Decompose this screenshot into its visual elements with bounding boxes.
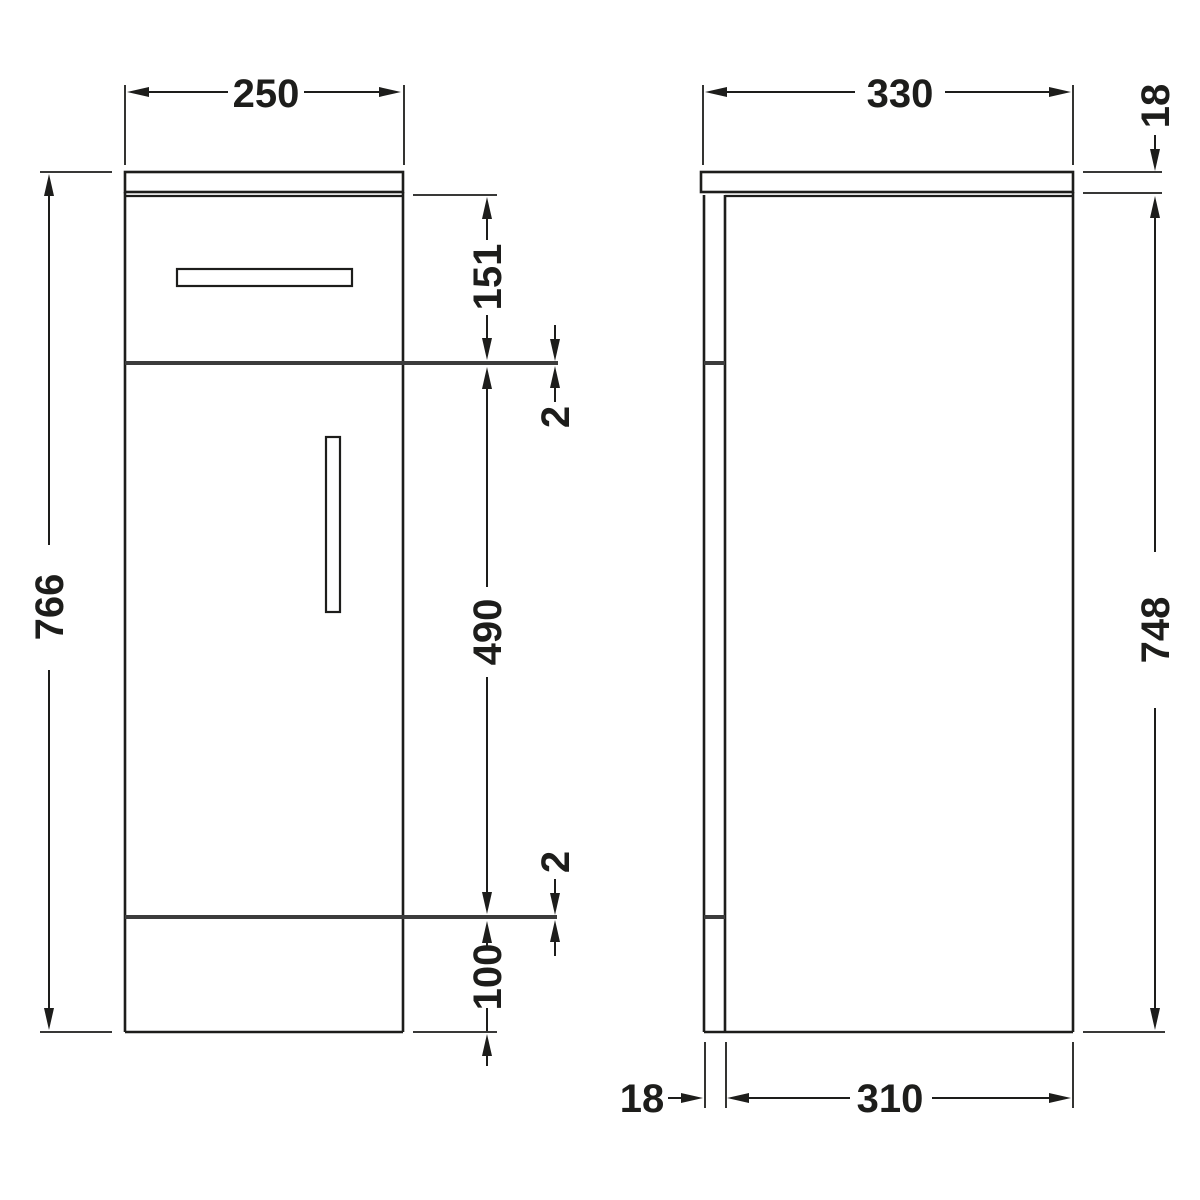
top-gap-label: 2 bbox=[534, 406, 578, 428]
carcass-height-label: 748 bbox=[1134, 597, 1178, 664]
plinth-height-label: 100 bbox=[466, 944, 510, 1011]
technical-drawing-page: 250 766 151 2 490 2 bbox=[0, 0, 1200, 1200]
side-depth-label: 330 bbox=[867, 72, 934, 116]
drawer-front-height-label: 151 bbox=[466, 244, 510, 311]
worktop-thickness-label: 18 bbox=[1134, 84, 1178, 129]
cabinet-dimension-drawing: 250 766 151 2 490 2 bbox=[0, 0, 1200, 1200]
front-width-label: 250 bbox=[233, 72, 300, 116]
bottom-gap-label: 2 bbox=[534, 851, 578, 873]
carcass-depth-label: 310 bbox=[857, 1077, 924, 1121]
drawing-background bbox=[0, 0, 1200, 1200]
door-height-label: 490 bbox=[466, 599, 510, 666]
front-panel-thickness-label: 18 bbox=[620, 1077, 665, 1121]
front-overall-height-label: 766 bbox=[28, 574, 72, 641]
